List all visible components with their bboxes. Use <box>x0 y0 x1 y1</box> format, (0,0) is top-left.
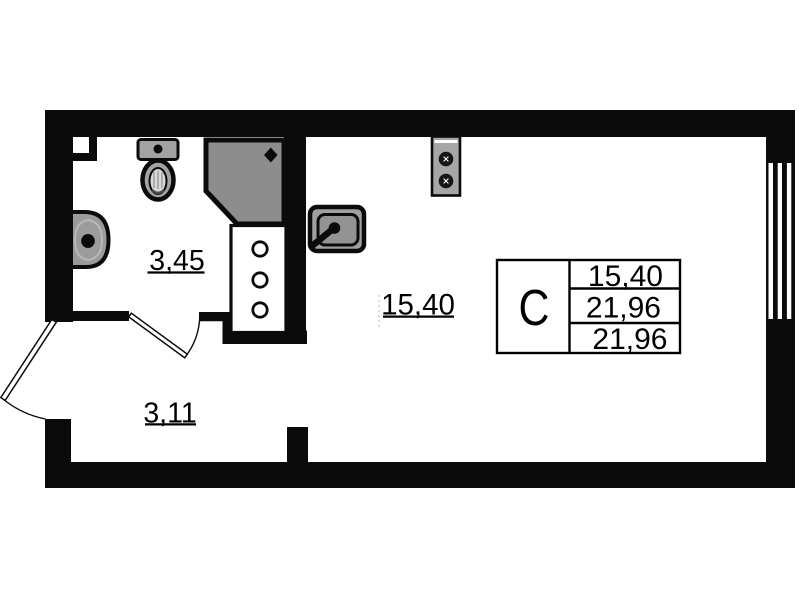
svg-text:21,96: 21,96 <box>592 323 667 356</box>
svg-text:21,96: 21,96 <box>586 291 661 324</box>
svg-text:15,40: 15,40 <box>588 260 663 293</box>
svg-text:С: С <box>519 278 550 335</box>
